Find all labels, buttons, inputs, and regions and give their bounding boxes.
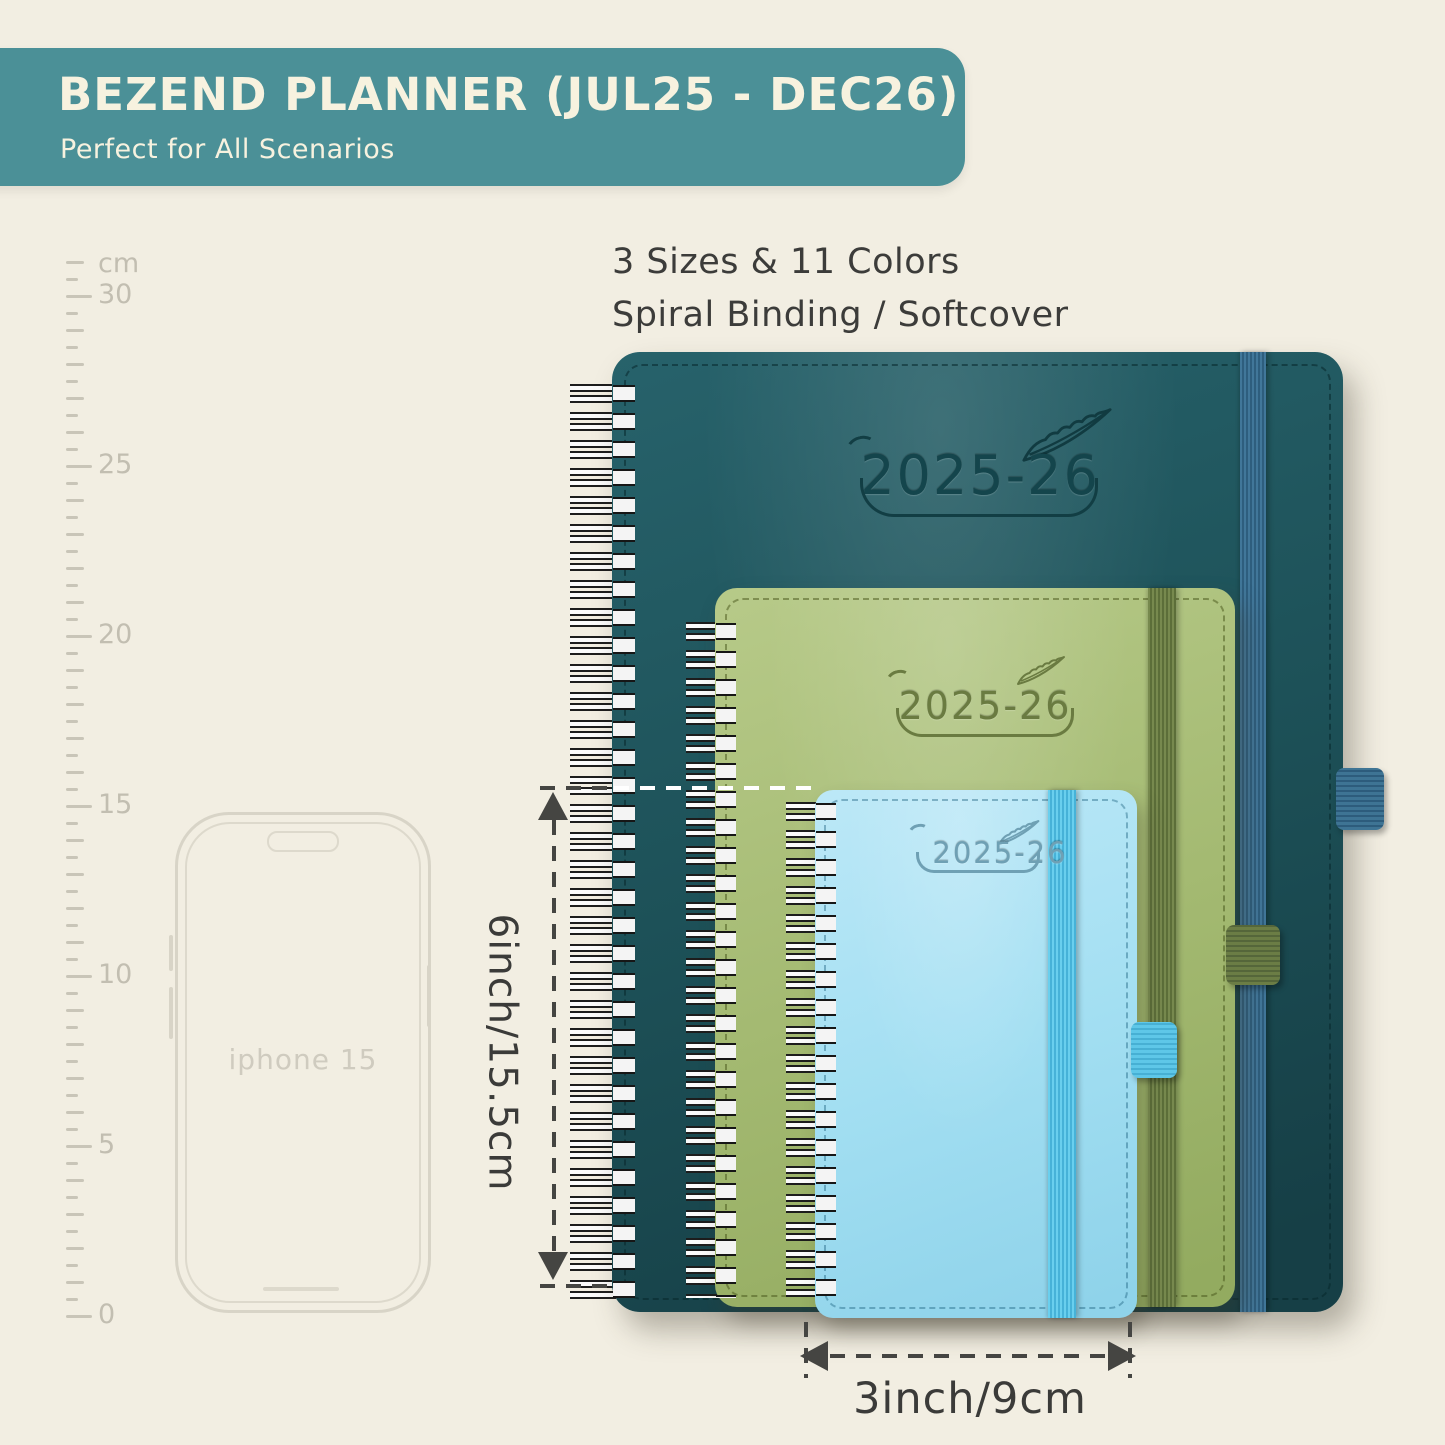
- ruler-tick: [66, 805, 92, 808]
- ruler-tick: [66, 839, 84, 842]
- ruler-tick: [66, 975, 92, 978]
- stitching: [824, 799, 1128, 1309]
- ruler-tick: [66, 1094, 78, 1097]
- spiral-binding-staples: [613, 382, 635, 1300]
- width-label: 3inch/9cm: [790, 1374, 1150, 1424]
- elastic-band: [1148, 588, 1176, 1307]
- ruler-tick: [66, 788, 78, 791]
- ruler-tick: [66, 1196, 78, 1199]
- ruler-tick: [66, 397, 84, 400]
- ruler-tick: [66, 907, 84, 910]
- ruler-tick: [66, 550, 78, 553]
- dashed-line: [614, 786, 812, 790]
- phone-label: iphone 15: [178, 1043, 428, 1076]
- phone-volume-button: [169, 935, 173, 971]
- arrow-left-icon: [800, 1341, 828, 1371]
- logo-swoosh: [896, 708, 1074, 737]
- ruler-tick: [66, 346, 78, 349]
- logo-swoosh: [916, 852, 1040, 873]
- ruler-tick: [66, 1128, 78, 1131]
- phone-camera-island: [267, 831, 339, 852]
- phone-volume-button: [169, 987, 173, 1039]
- pen-loop: [1336, 768, 1384, 830]
- ruler-tick: [66, 720, 78, 723]
- spiral-binding-staples: [816, 800, 836, 1298]
- dashed-line: [540, 786, 614, 790]
- pen-loop: [1226, 925, 1280, 985]
- ruler-tick: [66, 1179, 84, 1182]
- phone-home-indicator: [263, 1287, 339, 1291]
- pen-loop: [1131, 1022, 1177, 1078]
- ruler-tick: [66, 601, 84, 604]
- ruler-tick: [66, 754, 78, 757]
- ruler-tick: [66, 1264, 78, 1267]
- ruler-label: 5: [98, 1129, 115, 1160]
- ruler-tick: [66, 873, 84, 876]
- ruler-tick: [66, 618, 78, 621]
- ruler-tick: [66, 499, 84, 502]
- ruler-tick: [66, 992, 78, 995]
- ruler-tick: [66, 1060, 78, 1063]
- logo-swoosh: [860, 478, 1098, 517]
- ruler-tick: [66, 924, 78, 927]
- ruler-label: 0: [98, 1299, 115, 1330]
- ruler-tick: [66, 686, 78, 689]
- feather-icon: [1016, 652, 1066, 688]
- ruler-tick: [66, 890, 78, 893]
- ruler-tick: [66, 1162, 78, 1165]
- ruler-tick: [66, 516, 78, 519]
- ruler-tick: [66, 584, 78, 587]
- ruler-tick: [66, 329, 84, 332]
- ruler-tick: [66, 941, 84, 944]
- spiral-binding-staples: [716, 620, 736, 1298]
- height-label: 6inch/15.5cm: [480, 903, 525, 1203]
- ruler-tick: [66, 856, 78, 859]
- arrow-up-icon: [538, 792, 568, 820]
- ruler-tick: [66, 1145, 92, 1148]
- ruler-tick: [66, 278, 78, 281]
- ruler-tick: [66, 1026, 78, 1029]
- ruler-label: 20: [98, 619, 132, 650]
- ruler-label: 15: [98, 789, 132, 820]
- ruler-unit-label: cm: [98, 248, 139, 279]
- ruler-tick: [66, 1315, 92, 1318]
- ruler-tick: [66, 1111, 84, 1114]
- ruler-tick: [66, 958, 78, 961]
- ruler-tick: [66, 1043, 84, 1046]
- ruler-tick: [66, 533, 84, 536]
- phone-power-button: [427, 965, 431, 1027]
- ruler-label: 25: [98, 449, 132, 480]
- ruler-tick: [66, 1077, 84, 1080]
- ruler-tick: [66, 380, 78, 383]
- ruler-tick: [66, 1230, 78, 1233]
- ruler-tick: [66, 312, 78, 315]
- ruler-tick: [66, 567, 84, 570]
- spiral-binding-wires: [570, 382, 616, 1300]
- ruler-tick: [66, 1213, 84, 1216]
- ruler-label: 30: [98, 279, 132, 310]
- dashed-line: [552, 820, 556, 1252]
- ruler-tick: [66, 737, 84, 740]
- ruler-tick: [66, 295, 92, 298]
- ruler-tick: [66, 635, 92, 638]
- ruler-tick: [66, 1247, 84, 1250]
- dashed-line: [830, 1354, 1108, 1358]
- elastic-band: [1240, 352, 1266, 1312]
- ruler-tick: [66, 703, 84, 706]
- arrow-down-icon: [538, 1252, 568, 1280]
- ruler-tick: [66, 465, 92, 468]
- dashed-line: [540, 1284, 616, 1288]
- product-image: BEZEND PLANNER (JUL25 - DEC26) Perfect f…: [0, 0, 1445, 1445]
- ruler-tick: [66, 431, 84, 434]
- ruler-tick: [66, 771, 84, 774]
- planner-cover-blue: 2025-26: [815, 790, 1137, 1318]
- ruler-label: 10: [98, 959, 132, 990]
- ruler-tick: [66, 261, 84, 264]
- ruler-tick: [66, 822, 78, 825]
- ruler-tick: [66, 669, 84, 672]
- ruler-tick: [66, 1298, 78, 1301]
- ruler-tick: [66, 482, 78, 485]
- ruler-tick: [66, 363, 84, 366]
- ruler-tick: [66, 414, 78, 417]
- ruler-tick: [66, 1009, 84, 1012]
- ruler-tick: [66, 448, 78, 451]
- phone-outline: iphone 15: [175, 812, 431, 1313]
- ruler-tick: [66, 1281, 84, 1284]
- ruler-tick: [66, 652, 78, 655]
- arrow-right-icon: [1108, 1341, 1136, 1371]
